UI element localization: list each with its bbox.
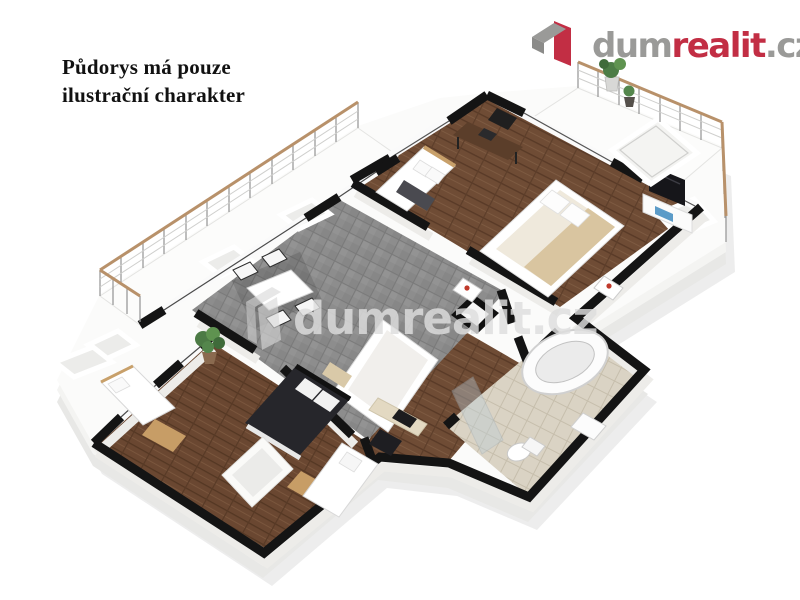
decor-item: [606, 283, 611, 288]
balcony-plant-icon: [624, 86, 636, 108]
plant-pot: [605, 77, 619, 91]
watermark: dumrealit.cz: [246, 287, 598, 350]
plant-foliage: [213, 337, 225, 349]
disclaimer-text: Půdorys má pouze ilustrační charakter: [62, 54, 245, 109]
watermark-text: dumrealit.cz: [293, 292, 598, 345]
plant-foliage: [202, 341, 214, 353]
dumrealit-logo-icon: [527, 10, 585, 72]
plant-foliage: [624, 86, 635, 97]
disclaimer-line-2: ilustrační charakter: [62, 82, 245, 110]
plant-pot: [624, 97, 635, 107]
dumrealit-logo: dumrealit.cz: [527, 10, 800, 72]
floor-plan-image: Půdorys má pouze ilustrační charakter du…: [0, 0, 800, 600]
logo-text-dum: dum: [592, 26, 671, 66]
logo-text-cz: .cz: [765, 26, 800, 66]
logo-text-realit: realit: [671, 26, 764, 66]
disclaimer-line-1: Půdorys má pouze: [62, 54, 245, 82]
decor-item: [464, 285, 469, 290]
logo-text: dumrealit.cz: [592, 26, 800, 66]
